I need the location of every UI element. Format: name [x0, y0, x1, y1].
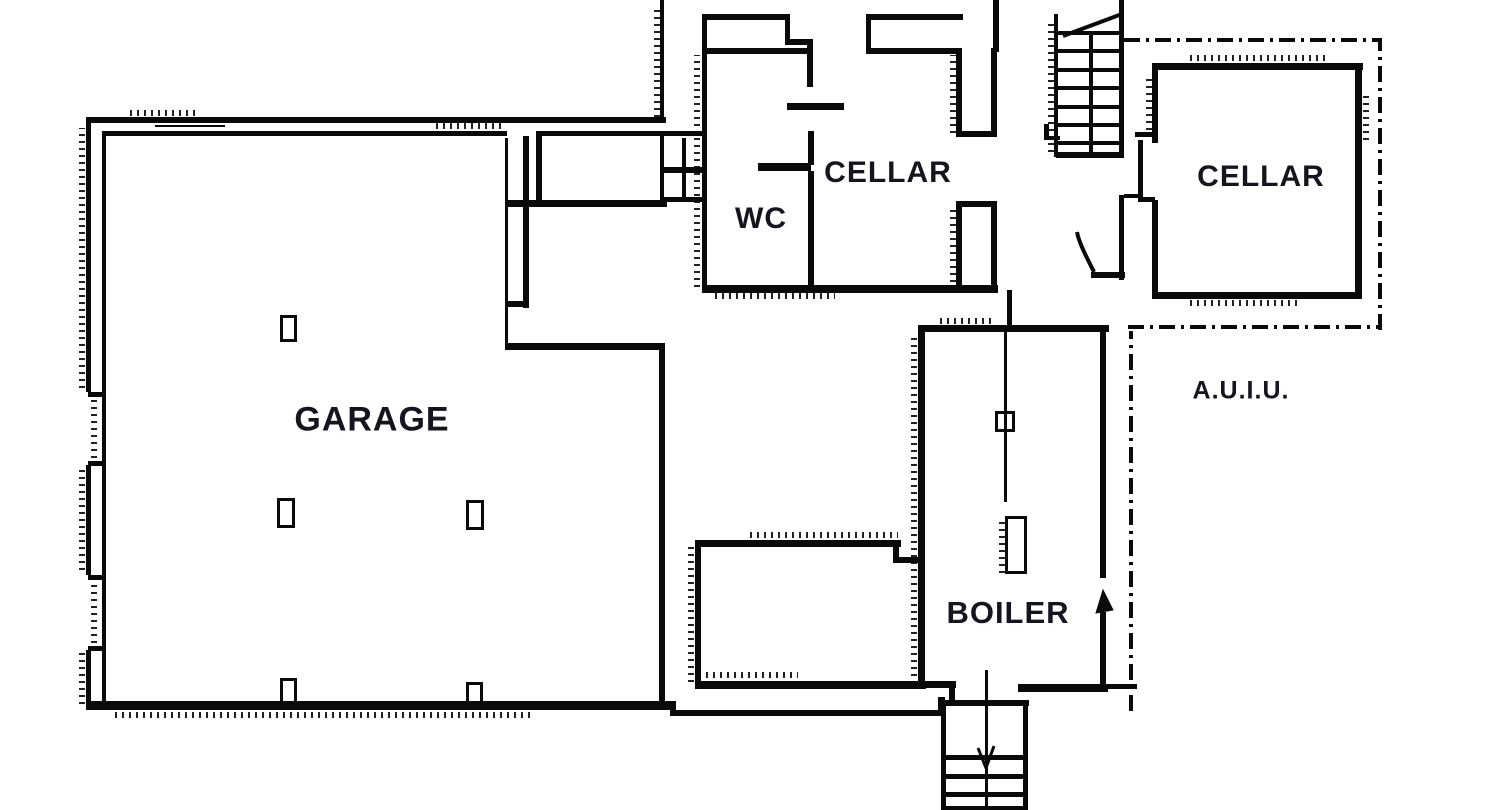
wall-segment	[1103, 684, 1137, 689]
wall-segment	[1004, 332, 1007, 502]
wall-segment	[505, 138, 508, 345]
wall-segment	[1058, 105, 1122, 109]
wall-segment	[866, 14, 963, 20]
wall-hatching	[436, 123, 502, 129]
plan-box	[280, 315, 297, 342]
wall-hatching	[715, 293, 835, 299]
wall-segment	[1054, 14, 1058, 157]
wall-hatching	[1190, 55, 1330, 61]
wall-segment	[702, 285, 998, 293]
wall-hatching	[750, 532, 898, 538]
wall-segment	[660, 136, 664, 202]
wall-segment	[1007, 290, 1012, 332]
wall-segment	[86, 117, 91, 392]
wall-segment	[1058, 68, 1122, 72]
boundary-dashdot-line	[1128, 325, 1381, 329]
wall-segment	[991, 201, 997, 292]
floor-plan-canvas: GARAGE WC CELLAR CELLAR BOILER A.U.I.U.	[0, 0, 1500, 810]
wall-segment	[808, 131, 814, 165]
door-swing	[1077, 232, 1094, 272]
wall-segment	[758, 163, 811, 171]
wall-hatching	[79, 652, 85, 704]
wall-segment	[155, 125, 225, 127]
wall-segment	[1044, 124, 1049, 140]
boundary-dashdot-line	[1129, 331, 1133, 711]
wall-segment	[943, 774, 1025, 779]
wall-segment	[1058, 123, 1122, 127]
wall-hatching	[91, 394, 97, 458]
wall-hatching	[91, 577, 97, 643]
plan-box	[1005, 516, 1027, 574]
wall-hatching	[688, 546, 694, 682]
wall-segment	[88, 575, 102, 580]
wall-segment	[893, 545, 899, 563]
room-label-cellar-left: CELLAR	[824, 156, 952, 190]
room-label-cellar-right: CELLAR	[1197, 160, 1325, 194]
wall-segment	[993, 0, 999, 52]
wall-segment	[695, 681, 926, 689]
wall-hatching	[911, 335, 917, 683]
wall-segment	[1058, 86, 1122, 90]
wall-hatching	[1363, 92, 1369, 140]
wall-segment	[695, 540, 701, 688]
wall-segment	[866, 14, 871, 54]
wall-segment	[523, 136, 529, 308]
wall-segment	[86, 650, 91, 708]
wall-segment	[787, 103, 844, 110]
wall-segment	[102, 131, 507, 136]
wall-segment	[941, 700, 946, 810]
wall-hatching	[79, 470, 85, 570]
wall-hatching	[130, 110, 200, 116]
wall-segment	[536, 131, 707, 136]
wall-segment	[536, 136, 542, 203]
wall-segment	[702, 14, 790, 20]
room-label-garage: GARAGE	[294, 401, 449, 440]
wall-segment	[1119, 0, 1124, 158]
wall-segment	[1119, 195, 1124, 280]
room-label-wc: WC	[735, 202, 787, 236]
wall-segment	[1124, 194, 1142, 198]
boundary-dashdot-line	[1124, 38, 1382, 42]
wall-segment	[1135, 132, 1155, 137]
wall-segment	[943, 806, 1025, 810]
plan-box	[466, 500, 484, 530]
boundary-dashdot-line	[1378, 40, 1382, 330]
wall-hatching	[79, 128, 85, 388]
wall-segment	[1138, 140, 1143, 202]
wall-segment	[1152, 63, 1363, 70]
room-label-boiler: BOILER	[946, 595, 1069, 631]
wall-hatching	[940, 318, 996, 324]
wall-segment	[102, 131, 106, 705]
wall-segment	[956, 201, 997, 207]
wall-segment	[505, 200, 667, 207]
wall-segment	[1023, 700, 1028, 810]
wall-segment	[1152, 292, 1362, 299]
wall-segment	[807, 39, 813, 87]
wall-segment	[86, 465, 91, 575]
wall-segment	[1058, 31, 1122, 35]
wall-hatching	[115, 712, 535, 718]
wall-segment	[1058, 49, 1122, 53]
wall-segment	[943, 700, 1029, 706]
wall-segment	[86, 117, 666, 123]
wall-segment	[702, 14, 707, 292]
wall-segment	[1100, 332, 1106, 578]
wall-segment	[1355, 63, 1362, 299]
wall-segment	[505, 343, 665, 350]
wall-hatching	[706, 672, 798, 678]
wall-segment	[682, 138, 686, 200]
wall-segment	[86, 701, 676, 710]
wall-segment	[985, 670, 988, 810]
wall-segment	[88, 392, 102, 397]
wall-segment	[918, 325, 925, 688]
boiler-door-arrow	[1096, 590, 1113, 613]
wall-segment	[956, 48, 962, 137]
wall-segment	[918, 325, 1109, 332]
wall-segment	[991, 48, 997, 137]
wall-segment	[660, 0, 664, 122]
wall-segment	[1100, 612, 1106, 688]
wall-segment	[956, 201, 962, 292]
wall-segment	[695, 540, 901, 547]
wall-segment	[1058, 141, 1122, 145]
wall-segment	[659, 347, 665, 703]
wall-segment	[1018, 684, 1108, 692]
wall-segment	[808, 171, 814, 292]
wall-hatching	[1190, 300, 1300, 306]
wall-segment	[943, 755, 1025, 760]
wall-segment	[670, 710, 945, 716]
wall-segment	[1152, 63, 1158, 143]
plan-box	[277, 498, 295, 528]
wall-segment	[943, 792, 1025, 797]
wall-segment	[866, 48, 960, 54]
wall-segment	[1152, 200, 1158, 299]
room-label-auiu: A.U.I.U.	[1193, 377, 1290, 406]
wall-segment	[702, 48, 810, 54]
